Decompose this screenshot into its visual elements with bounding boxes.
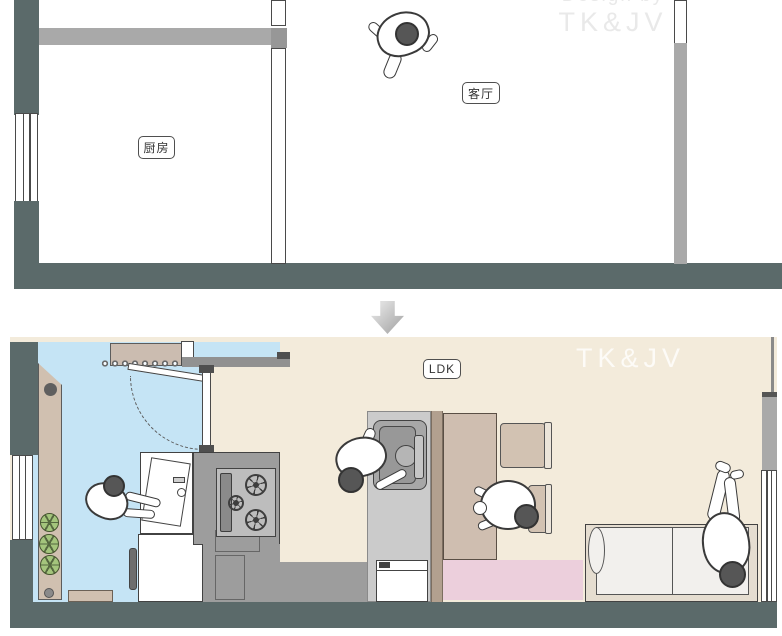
beam-end-cap	[277, 352, 290, 359]
burner-icon	[245, 509, 267, 531]
person-arm	[124, 491, 161, 508]
cabinet-knob	[44, 383, 57, 396]
bowl-icon	[473, 501, 487, 515]
after-bottom-wall	[10, 602, 777, 628]
before-top-gray-wall	[39, 28, 272, 45]
room-label-ldk: LDK	[423, 359, 461, 379]
floorplan-before-after-image: 厨房 客厅 Design by TK&JV	[0, 0, 782, 636]
cabinet-door-outline	[215, 555, 245, 600]
person-at-dining-table	[473, 477, 548, 539]
room-label-ldk-text: LDK	[429, 362, 455, 376]
before-watermark-line2: TK&JV	[548, 7, 678, 38]
room-label-kitchen: 厨房	[138, 136, 175, 159]
counter-apron	[280, 562, 367, 602]
after-watermark: TK&JV	[576, 343, 685, 374]
room-label-living: 客厅	[462, 82, 500, 104]
after-kitchen-floor-strip	[203, 342, 280, 358]
after-plan: LDK TK&JV	[0, 337, 782, 632]
before-watermark: Design by TK&JV	[548, 0, 678, 38]
before-watermark-line1: Design by	[548, 0, 678, 7]
room-label-kitchen-text: 厨房	[143, 139, 169, 156]
sofa-pillow	[588, 527, 605, 574]
person-head	[514, 504, 539, 529]
before-gray-wall-junction	[271, 28, 287, 48]
after-right-wall-line	[771, 337, 774, 394]
pink-rug	[443, 560, 583, 600]
plant-icon	[40, 555, 60, 575]
kitchen-mat	[68, 590, 113, 602]
person-arm	[123, 508, 156, 519]
person-on-sofa	[695, 467, 755, 602]
drain-dot	[177, 488, 186, 497]
person-arm	[374, 468, 408, 492]
person-at-vanity	[330, 435, 410, 505]
person-head	[395, 22, 419, 46]
before-partition-column-upper	[271, 0, 286, 26]
washing-machine-panel-line	[376, 570, 428, 571]
sofa-cushion	[596, 527, 673, 595]
before-plan: 厨房 客厅 Design by TK&JV	[0, 0, 782, 290]
before-after-arrow-icon	[371, 301, 404, 334]
before-left-wall-upper	[14, 0, 39, 115]
after-left-wall-upper	[10, 342, 38, 455]
burner-icon	[228, 495, 244, 511]
before-right-wall-white-segment	[674, 0, 687, 44]
person-at-kitchen-sink	[85, 467, 165, 537]
dining-chair-backrest	[544, 422, 552, 469]
tan-partition-wall	[431, 411, 443, 602]
washing-machine-control	[379, 562, 390, 568]
faucet-icon	[173, 477, 185, 483]
before-left-wall-lower	[14, 201, 39, 264]
after-right-wall-gray	[762, 397, 777, 470]
room-label-living-text: 客厅	[468, 85, 494, 102]
before-partition-column-lower	[271, 48, 286, 264]
after-right-window	[761, 470, 777, 602]
plant-icon	[40, 513, 59, 532]
person-foot	[729, 469, 745, 481]
burner-icon	[245, 474, 267, 496]
door-post	[202, 367, 211, 453]
person-head	[338, 467, 364, 493]
refrigerator-handle	[129, 548, 137, 590]
before-left-window	[15, 113, 38, 203]
after-left-wall-lower	[10, 540, 33, 602]
after-left-window	[12, 455, 33, 540]
door-hinge-top	[199, 365, 214, 373]
dining-chair	[500, 423, 546, 468]
before-right-wall-gray	[674, 43, 687, 264]
person-head	[103, 475, 125, 497]
cabinet-knob	[44, 588, 54, 598]
before-bottom-wall	[14, 263, 782, 289]
plant-icon	[39, 534, 59, 554]
person-head	[719, 561, 746, 588]
vanity-faucet-panel	[414, 435, 424, 479]
person-standing-living-room	[368, 2, 443, 80]
